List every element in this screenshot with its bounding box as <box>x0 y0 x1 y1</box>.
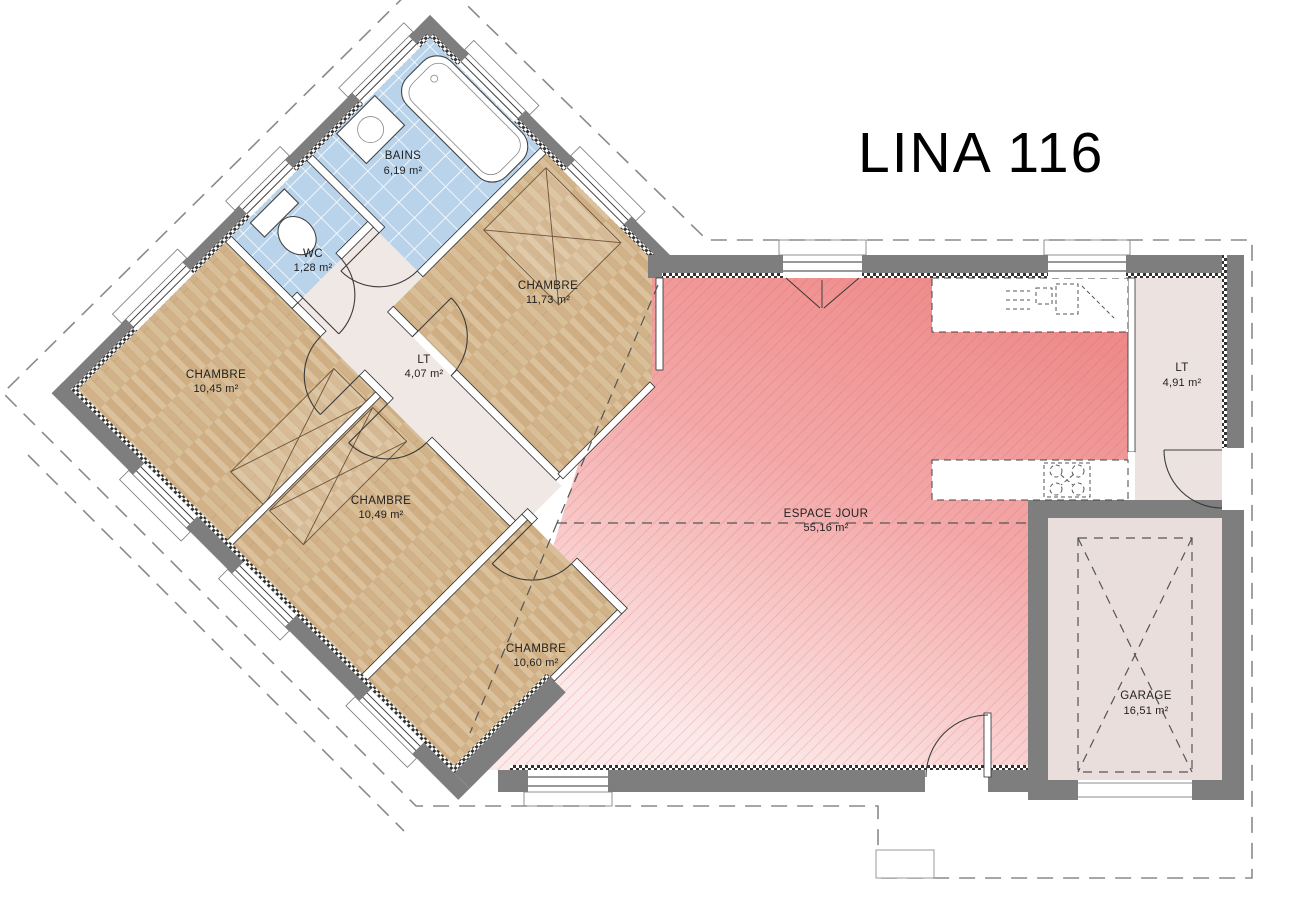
area-bains: 6,19 m² <box>384 165 423 177</box>
floor-plan-page: LINA 116 BAINS 6,19 m² WC 1,28 m² CHAMBR… <box>0 0 1301 908</box>
area-chambre-2: 10,45 m² <box>193 383 238 395</box>
plan-title: LINA 116 <box>858 121 1104 185</box>
label-lt-1: LT <box>417 354 430 366</box>
area-garage: 16,51 m² <box>1123 705 1168 717</box>
partition-lt-entry <box>1128 278 1135 452</box>
area-chambre-4: 10,60 m² <box>513 657 558 669</box>
area-chambre-1: 11,73 m² <box>526 294 570 306</box>
label-chambre-2: CHAMBRE <box>186 369 246 381</box>
label-chambre-4: CHAMBRE <box>506 643 566 655</box>
label-chambre-3: CHAMBRE <box>351 495 411 507</box>
label-bains: BAINS <box>385 150 422 162</box>
door-opening <box>1128 452 1135 500</box>
area-lt-1: 4,07 m² <box>405 368 444 380</box>
area-chambre-3: 10,49 m² <box>358 509 403 521</box>
area-wc: 1,28 m² <box>294 262 333 274</box>
label-wc: WC <box>303 248 323 260</box>
partition-chambre1-espace <box>656 278 663 370</box>
label-garage: GARAGE <box>1120 690 1172 702</box>
porch-step <box>876 850 934 878</box>
room-lt-entry <box>1135 278 1222 500</box>
label-espace-jour: ESPACE JOUR <box>784 508 869 520</box>
floor-plan: LINA 116 BAINS 6,19 m² WC 1,28 m² CHAMBR… <box>0 0 1301 908</box>
area-lt-2: 4,91 m² <box>1163 377 1202 389</box>
label-chambre-1: CHAMBRE <box>518 280 578 292</box>
room-garage <box>1048 518 1222 780</box>
label-lt-2: LT <box>1175 362 1188 374</box>
area-espace-jour: 55,16 m² <box>803 522 848 534</box>
